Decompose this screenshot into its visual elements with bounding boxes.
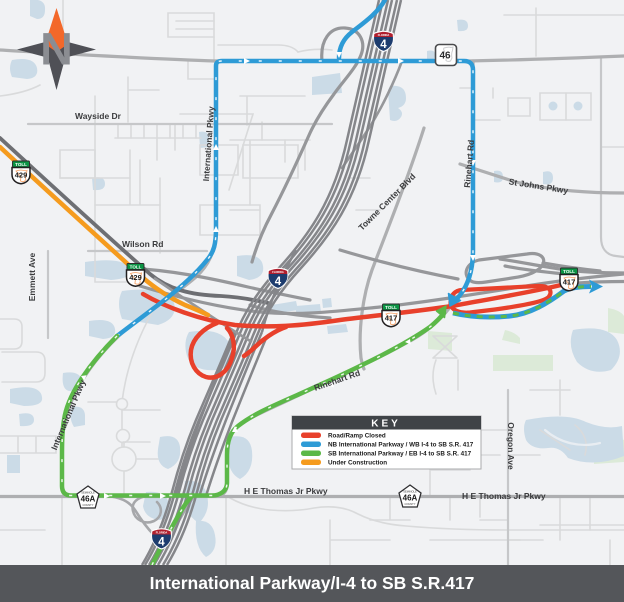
svg-text:KEY: KEY: [371, 419, 401, 430]
svg-text:429: 429: [15, 171, 28, 180]
svg-text:Wilson Rd: Wilson Rd: [122, 239, 163, 249]
svg-text:TOLL: TOLL: [15, 162, 27, 167]
svg-text:429: 429: [129, 273, 142, 282]
svg-text:Oregon Ave: Oregon Ave: [506, 422, 516, 470]
svg-text:FLORIDA: FLORIDA: [378, 33, 390, 37]
svg-text:Wayside Dr: Wayside Dr: [75, 111, 122, 121]
svg-text:H E Thomas Jr Pkwy: H E Thomas Jr Pkwy: [244, 486, 328, 496]
svg-text:COUNTY: COUNTY: [83, 503, 94, 507]
svg-text:N: N: [40, 24, 73, 75]
svg-text:International Parkway/I-4 to S: International Parkway/I-4 to SB S.R.417: [150, 573, 475, 593]
svg-text:NB International Parkway / WB: NB International Parkway / WB I-4 to SB …: [328, 442, 474, 449]
svg-text:TOLL: TOLL: [563, 269, 575, 274]
svg-text:FLORIDA: FLORIDA: [156, 531, 168, 535]
svg-text:SB International Parkway / EB: SB International Parkway / EB I-4 to SB …: [328, 451, 472, 458]
svg-text:TOLL: TOLL: [385, 305, 397, 310]
svg-text:417: 417: [563, 278, 576, 287]
svg-text:TOLL: TOLL: [130, 265, 142, 270]
svg-text:4: 4: [158, 537, 165, 549]
svg-text:46: 46: [439, 51, 451, 62]
svg-text:Emmett Ave: Emmett Ave: [27, 252, 37, 301]
svg-text:417: 417: [385, 314, 398, 323]
svg-text:4: 4: [275, 276, 282, 288]
svg-text:Road/Ramp Closed: Road/Ramp Closed: [328, 433, 386, 440]
svg-text:46A: 46A: [81, 494, 96, 503]
svg-text:H E Thomas Jr Pkwy: H E Thomas Jr Pkwy: [462, 491, 546, 501]
svg-text:COUNTY: COUNTY: [405, 502, 416, 506]
svg-text:Under Construction: Under Construction: [328, 460, 387, 467]
svg-text:46A: 46A: [403, 493, 418, 502]
svg-text:4: 4: [380, 39, 387, 51]
svg-text:FLORIDA: FLORIDA: [272, 270, 284, 274]
